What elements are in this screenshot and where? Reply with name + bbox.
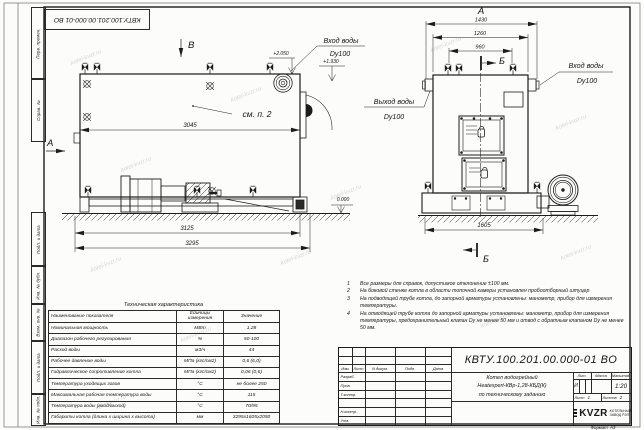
role-prov: Пров. — [339, 381, 365, 390]
notes-list: 1Все размеры для справок, допустимое отк… — [346, 281, 628, 333]
spec-name: Температура уходящих газов — [49, 379, 177, 390]
margin-cell-inv-podl: Инв. № подл. — [31, 393, 46, 426]
note-number: 2 — [346, 288, 360, 295]
front-inlet-dn-label: Dy100 — [577, 78, 597, 85]
spec-header-name: Наименование показателя — [49, 310, 177, 323]
spec-row: Номинальная мощностьМВт1,28 — [49, 323, 280, 334]
front-outlet-label: Выход воды — [374, 97, 415, 106]
spec-row: Рабочее давление водыМПа (кгс/см2)0,6 (6… — [49, 356, 280, 367]
spec-row: Габариты котла (длина х ширина х высота)… — [49, 412, 280, 423]
sheets-value: 2 — [620, 395, 623, 400]
col-ndokum: N докум. — [365, 364, 395, 372]
company-name: КОТЕЛЬНЫЙ ЗАВОД РЭП — [610, 409, 631, 417]
see-note-2-label: см. п. 2 — [243, 109, 272, 119]
margin-label: Взам. инв. № — [36, 308, 41, 336]
role-tkontr: Т.контр. — [339, 390, 365, 398]
spec-name: Гидравлическое сопротивление котла — [49, 368, 177, 379]
side-inlet-dn-label: Dy100 — [330, 51, 350, 58]
top-inverted-doc-number: КВТУ.100.201.00.000-01 ВО — [44, 9, 150, 30]
spec-value: 1,28 — [224, 323, 280, 334]
spec-name: Максимальная рабочая температура воды — [49, 390, 177, 401]
spec-value: 3295х1605х2050 — [224, 412, 280, 423]
view-b-label: В — [188, 40, 195, 51]
spec-unit: °С — [177, 390, 224, 401]
front-inlet-label: Вход воды — [569, 61, 605, 70]
elevation-2050-label: +2.050 — [273, 51, 289, 57]
blower-fan — [537, 175, 578, 215]
spec-header-value: Значение — [224, 310, 280, 323]
dim-3045-label: 3045 — [183, 123, 197, 129]
sheets-label: Листов — [603, 395, 617, 400]
elevation-1930-label: +1.930 — [323, 59, 339, 65]
logo-bars-icon — [573, 409, 577, 418]
spec-name: Габариты котла (длина х ширина х высота) — [49, 412, 177, 423]
spec-value: 0,6 (6,0) — [224, 356, 280, 367]
role-razrab: Разраб. — [339, 372, 365, 381]
top-doc-number-text: КВТУ.100.201.00.000-01 ВО — [54, 16, 141, 23]
spec-name: Диапазон рабочего регулирования — [49, 334, 177, 345]
section-b-top-label: Б — [499, 56, 505, 66]
front-view-a-label: А — [477, 6, 484, 17]
note-text: На отводящей трубе котла до запорной арм… — [360, 311, 628, 333]
drawing-sheet: kotel-kvzr.ru kotel-kvzr.ru kotel-kvzr.r… — [0, 0, 644, 430]
spec-unit: МПа (кгс/см2) — [177, 356, 224, 367]
spec-name: Расход воды — [49, 345, 177, 356]
inlet-flange-front — [528, 79, 539, 91]
spec-header-row: Наименование показателя Единицы измерени… — [49, 310, 280, 323]
margin-label: Подп. и дата — [36, 225, 41, 254]
spec-value: 50-100 — [224, 334, 280, 345]
company-name-line2: ЗАВОД РЭП — [610, 413, 631, 417]
margin-label: Подп. и дата — [36, 353, 41, 382]
scale-label: Масштаб — [611, 372, 631, 379]
spec-value: 0,06 (0,6) — [224, 368, 280, 379]
outlet-flange — [423, 79, 434, 91]
spec-unit: МВт — [177, 323, 224, 334]
spec-value: 115 — [224, 390, 280, 401]
spec-name: Номинальная мощность — [49, 323, 177, 334]
foundation-base — [422, 193, 541, 213]
front-view — [364, 21, 613, 257]
dim-1430-label: 1430 — [475, 18, 488, 24]
note-number: 1 — [346, 281, 360, 288]
col-data: Дата — [425, 364, 451, 372]
title-block: Изм. Лист N докум. Подп. Дата Разраб. Пр… — [338, 347, 632, 426]
inlet-flange — [274, 74, 292, 92]
col-list: Лист — [352, 364, 365, 372]
margin-cell-podp-data-2: Подп. и дата — [31, 340, 46, 395]
spec-unit: °С — [177, 379, 224, 390]
role-utv: Утв. — [339, 416, 365, 425]
spec-unit: мм — [177, 412, 224, 423]
product-name-line2: Heatexpert-КВр-1,28-КБД(К) — [477, 382, 546, 390]
margin-cell-vzam-inv: Взам. инв. № — [31, 303, 46, 342]
dim-960-label: 960 — [475, 45, 485, 51]
spec-value: не более 250 — [224, 379, 280, 390]
margin-label: Инв. № подл. — [36, 395, 41, 423]
elevation-0000-label: 0.000 — [337, 197, 350, 203]
spec-unit: % — [177, 334, 224, 345]
scale-value: 1:20 — [611, 379, 631, 393]
spec-value: 70/95 — [224, 401, 280, 412]
spec-table-title: Техническая характеристика — [48, 302, 279, 308]
dim-1260-label: 1260 — [474, 31, 487, 37]
upper-door — [459, 116, 504, 155]
mass-label: Масса — [591, 372, 611, 379]
sheet-cell: Лист 1 — [573, 393, 601, 401]
dim-3125-label: 3125 — [180, 226, 194, 232]
doc-number: КВТУ.100.201.00.000-01 ВО — [451, 348, 631, 372]
note-text: На боковой стенке котла в области топочн… — [360, 288, 628, 295]
spec-name: Рабочее давление воды — [49, 356, 177, 367]
sheets-cell: Листов 2 — [601, 393, 631, 401]
lit-label: Лит. — [573, 372, 591, 379]
margin-label: Перв. примен. — [36, 28, 41, 58]
spec-row: Гидравлическое сопротивление котлаМПа (к… — [49, 368, 280, 379]
spec-row: Расход водым3/ч44 — [49, 345, 280, 356]
format-value: А3 — [610, 425, 615, 430]
sheet-label: Лист — [575, 395, 585, 400]
spec-unit: °С — [177, 401, 224, 412]
product-name-line1: Котел водогрейный — [486, 374, 537, 382]
format-label: Формат А3 — [575, 425, 631, 430]
note-text: На подводящей трубе котла, до запорной а… — [360, 296, 628, 311]
open-door — [306, 104, 313, 117]
note-item: 2На боковой стенке котла в области топоч… — [346, 288, 628, 295]
spec-name: Температура воды (вход/выход) — [49, 401, 177, 412]
role-nkontr: Н.контр. — [339, 407, 365, 416]
note-number: 3 — [346, 296, 360, 311]
front-outlet-dn-label: Dy100 — [384, 114, 404, 121]
spec-table-block: Техническая характеристика Наименование … — [48, 302, 279, 424]
logo-text: KVZR — [579, 408, 607, 419]
margin-cell-sprav-no: Справ. № — [31, 78, 46, 142]
side-view — [46, 39, 365, 252]
spec-row: Максимальная рабочая температура воды°С1… — [49, 390, 280, 401]
spec-value: 44 — [224, 345, 280, 356]
format-word: Формат — [591, 425, 608, 430]
spec-row: Температура уходящих газов°Сне более 250 — [49, 379, 280, 390]
note-item: 3На подводящей трубе котла, до запорной … — [346, 296, 628, 311]
sheet-value: 1 — [588, 395, 591, 400]
spec-unit: МПа (кгс/см2) — [177, 368, 224, 379]
view-a-label: А — [46, 138, 53, 149]
margin-label: Справ. № — [36, 100, 41, 121]
role-empty — [339, 398, 365, 407]
col-izm: Изм. — [339, 364, 352, 372]
note-number: 4 — [346, 311, 360, 333]
dim-1605-label: 1605 — [477, 223, 491, 229]
margin-cell-podp-data: Подп. и дата — [31, 212, 46, 267]
burner-fan-unit — [121, 176, 221, 212]
spec-row: Температура воды (вход/выход)°С70/95 — [49, 401, 280, 412]
product-name: Котел водогрейный Heatexpert-КВр-1,28-КБ… — [451, 372, 573, 401]
lower-door — [462, 158, 506, 191]
elevation-marks — [269, 58, 353, 213]
side-inlet-label: Вход воды — [324, 36, 360, 45]
lit-value: И — [573, 379, 579, 393]
col-podp: Подп. — [395, 364, 425, 372]
product-name-line3: по техническому заданию — [479, 391, 546, 399]
dim-3295-label: 3295 — [185, 241, 199, 247]
spec-table: Наименование показателя Единицы измерени… — [48, 310, 280, 424]
margin-label: Инв. № дубл. — [36, 271, 41, 299]
spec-row: Диапазон рабочего регулирования%50-100 — [49, 334, 280, 345]
spec-unit: м3/ч — [177, 345, 224, 356]
margin-cell-inv-dubl: Инв. № дубл. — [31, 265, 46, 305]
company-logo: KVZR КОТЕЛЬНЫЙ ЗАВОД РЭП — [573, 401, 631, 425]
note-item: 4На отводящей трубе котла до запорной ар… — [346, 311, 628, 333]
spec-header-unit: Единицы измерения — [177, 310, 224, 323]
section-b-bottom-label: Б — [483, 254, 489, 264]
